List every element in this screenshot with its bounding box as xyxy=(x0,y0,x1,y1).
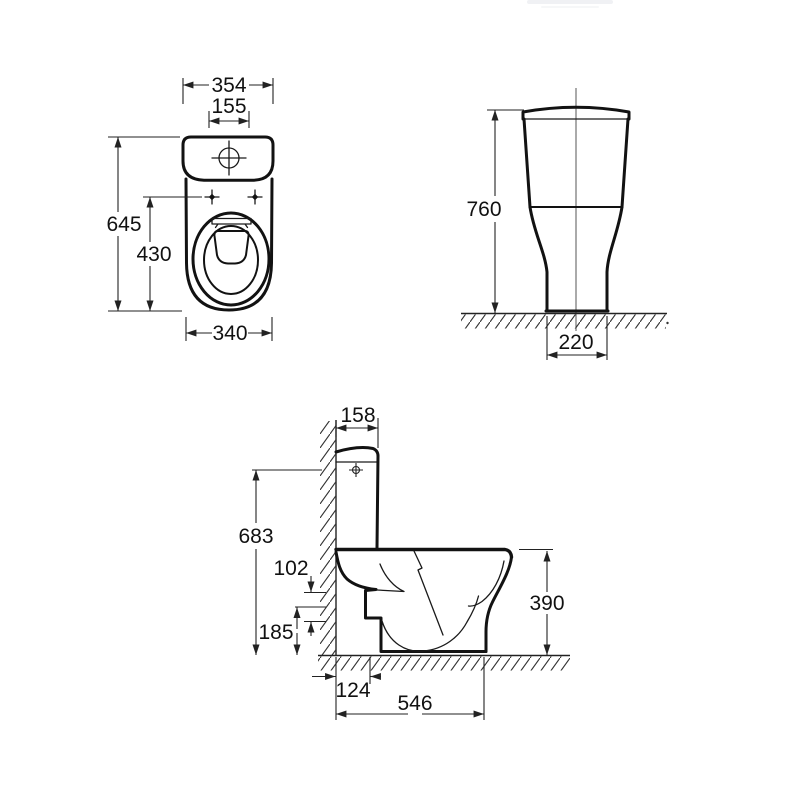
bowl-front-profile xyxy=(486,557,512,652)
dim-label-102: 102 xyxy=(273,557,308,580)
hinge-fixing-marks xyxy=(205,190,262,204)
floor-hatch-side xyxy=(318,657,570,671)
cistern-side-lid xyxy=(336,448,378,456)
dim-label-390: 390 xyxy=(529,592,564,615)
seat-top-line xyxy=(336,550,512,558)
dim-outlet-height: 185 xyxy=(258,608,297,656)
side-view: 158 683 102 185 390 xyxy=(233,404,570,720)
technical-drawing-canvas: 354 155 645 430 34 xyxy=(0,0,800,800)
dim-label-760: 760 xyxy=(466,198,501,221)
bowl-back-profile xyxy=(336,552,381,651)
dim-label-155: 155 xyxy=(211,95,246,118)
ground-hatch-front xyxy=(461,315,666,329)
flush-button-symbol xyxy=(212,141,246,175)
dim-overall-depth-plan: 645 xyxy=(103,137,182,311)
dim-flush-button-span: 155 xyxy=(209,95,249,128)
dim-label-645: 645 xyxy=(106,213,141,236)
seat-inner-rim xyxy=(204,226,258,294)
plan-view: 354 155 645 430 34 xyxy=(103,74,273,345)
dim-label-683: 683 xyxy=(238,525,273,548)
dim-overall-height: 760 xyxy=(463,110,524,313)
dim-label-340: 340 xyxy=(212,322,247,345)
drawing-page: 354 155 645 430 34 xyxy=(0,0,800,800)
dim-label-430: 430 xyxy=(136,243,171,266)
dim-rim-height: 390 xyxy=(519,550,568,656)
watermark-artifact xyxy=(527,0,613,8)
dim-label-546: 546 xyxy=(397,692,432,715)
dim-bowl-width: 340 xyxy=(186,317,272,345)
dim-label-354: 354 xyxy=(211,74,246,97)
dim-label-185: 185 xyxy=(258,621,293,644)
sump-outline xyxy=(214,231,248,264)
cistern-side-front xyxy=(377,456,378,548)
wall-hatch xyxy=(320,421,336,655)
dim-label-158: 158 xyxy=(340,404,375,427)
dim-label-220: 220 xyxy=(558,331,593,354)
dim-label-124: 124 xyxy=(335,679,370,702)
front-view: 760 220 xyxy=(461,88,669,360)
dim-cistern-depth: 158 xyxy=(336,404,378,448)
cistern-fixing-mark xyxy=(349,463,363,477)
